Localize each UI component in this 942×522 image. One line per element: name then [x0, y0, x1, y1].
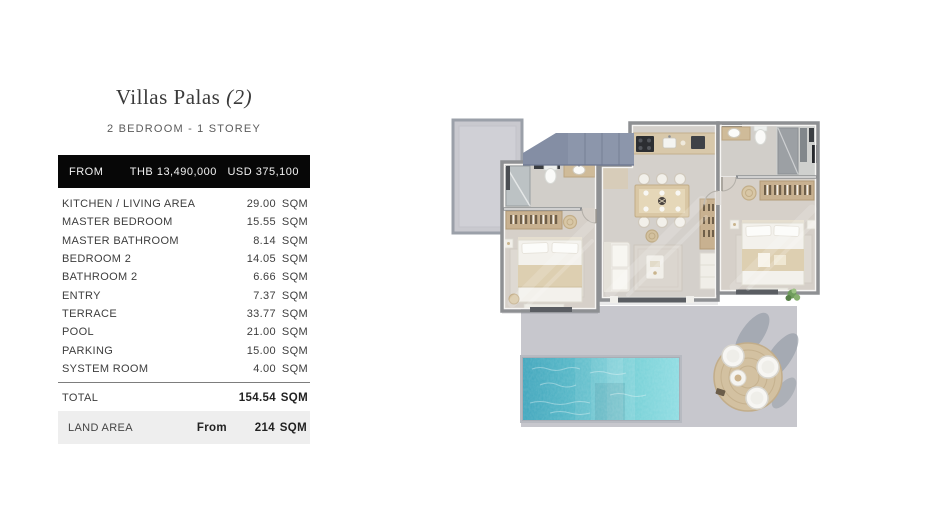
pouf: [742, 186, 756, 200]
floor-plan-image: [440, 103, 840, 463]
carport-roof: [523, 133, 634, 165]
row-label: TERRACE: [62, 308, 234, 320]
area-table: KITCHEN / LIVING AREA 29.00 SQM MASTER B…: [58, 195, 310, 378]
price-thb: THB 13,490,000: [130, 166, 217, 178]
row-value: 14.05: [234, 253, 276, 265]
row-label: BEDROOM 2: [62, 253, 234, 265]
row-label: PARKING: [62, 345, 234, 357]
price-bar: FROM THB 13,490,000 USD 375,100: [58, 155, 310, 188]
row-label: SYSTEM ROOM: [62, 363, 234, 375]
villa-name: Villas Palas: [116, 85, 220, 109]
row-unit: SQM: [276, 271, 308, 283]
brochure-page: Villas Palas (2) 2 BEDROOM - 1 STOREY FR…: [0, 0, 942, 522]
price-usd: USD 375,100: [227, 166, 299, 178]
cooktop: [636, 136, 654, 152]
row-unit: SQM: [276, 308, 308, 320]
row-label: KITCHEN / LIVING AREA: [62, 198, 234, 210]
land-value: 214: [233, 422, 275, 434]
total-label: TOTAL: [62, 392, 234, 404]
row-unit: SQM: [276, 235, 308, 247]
toilet: [755, 130, 766, 145]
pouf: [564, 216, 577, 229]
row-value: 15.00: [234, 345, 276, 357]
total-value: 154.54: [234, 392, 276, 404]
row-value: 8.14: [234, 235, 276, 247]
table-row: PARKING 15.00 SQM: [58, 341, 310, 359]
page-title: Villas Palas (2): [58, 85, 310, 110]
row-value: 29.00: [234, 198, 276, 210]
table-row: ENTRY 7.37 SQM: [58, 286, 310, 304]
bedroom2-suite: [704, 123, 818, 295]
table-row: KITCHEN / LIVING AREA 29.00 SQM: [58, 195, 310, 213]
table-row: SYSTEM ROOM 4.00 SQM: [58, 360, 310, 378]
villa-number: (2): [226, 85, 252, 109]
sliding-door: [736, 290, 778, 295]
land-unit: SQM: [275, 422, 307, 434]
row-value: 15.55: [234, 216, 276, 228]
sliding-door: [530, 307, 572, 312]
row-label: ENTRY: [62, 290, 234, 302]
table-row: TERRACE 33.77 SQM: [58, 305, 310, 323]
villa-subtitle: 2 BEDROOM - 1 STOREY: [58, 123, 310, 135]
row-unit: SQM: [276, 253, 308, 265]
total-divider: [58, 382, 310, 383]
sliding-door: [618, 298, 686, 303]
row-value: 21.00: [234, 326, 276, 338]
land-prefix: From: [197, 422, 227, 434]
sink: [573, 166, 585, 175]
total-unit: SQM: [276, 392, 308, 404]
villa-info-panel: Villas Palas (2) 2 BEDROOM - 1 STOREY FR…: [58, 85, 310, 455]
row-value: 33.77: [234, 308, 276, 320]
table-row: POOL 21.00 SQM: [58, 323, 310, 341]
price-values: THB 13,490,000 USD 375,100: [123, 166, 299, 178]
row-value: 4.00: [234, 363, 276, 375]
pool: [520, 355, 682, 423]
oven: [691, 136, 705, 149]
toilet: [545, 169, 556, 184]
row-unit: SQM: [276, 198, 308, 210]
cabinet: [700, 253, 716, 289]
table-row: BATHROOM 2 6.66 SQM: [58, 268, 310, 286]
row-unit: SQM: [276, 326, 308, 338]
row-unit: SQM: [276, 290, 308, 302]
row-unit: SQM: [276, 345, 308, 357]
row-unit: SQM: [276, 363, 308, 375]
table-row: BEDROOM 2 14.05 SQM: [58, 250, 310, 268]
row-value: 6.66: [234, 271, 276, 283]
price-from-label: FROM: [69, 166, 103, 178]
table-row: MASTER BEDROOM 15.55 SQM: [58, 213, 310, 231]
land-label: LAND AREA: [68, 422, 197, 434]
entry: [602, 167, 628, 189]
row-unit: SQM: [276, 216, 308, 228]
kitchen: [633, 133, 716, 154]
table-row: MASTER BATHROOM 8.14 SQM: [58, 232, 310, 250]
total-row: TOTAL 154.54 SQM: [58, 384, 310, 411]
kitchen-sink: [663, 138, 676, 148]
row-label: MASTER BATHROOM: [62, 235, 234, 247]
land-area-row: LAND AREA From 214 SQM: [58, 411, 310, 444]
sink: [728, 129, 740, 138]
row-label: BATHROOM 2: [62, 271, 234, 283]
row-label: POOL: [62, 326, 234, 338]
row-label: MASTER BEDROOM: [62, 216, 234, 228]
row-value: 7.37: [234, 290, 276, 302]
